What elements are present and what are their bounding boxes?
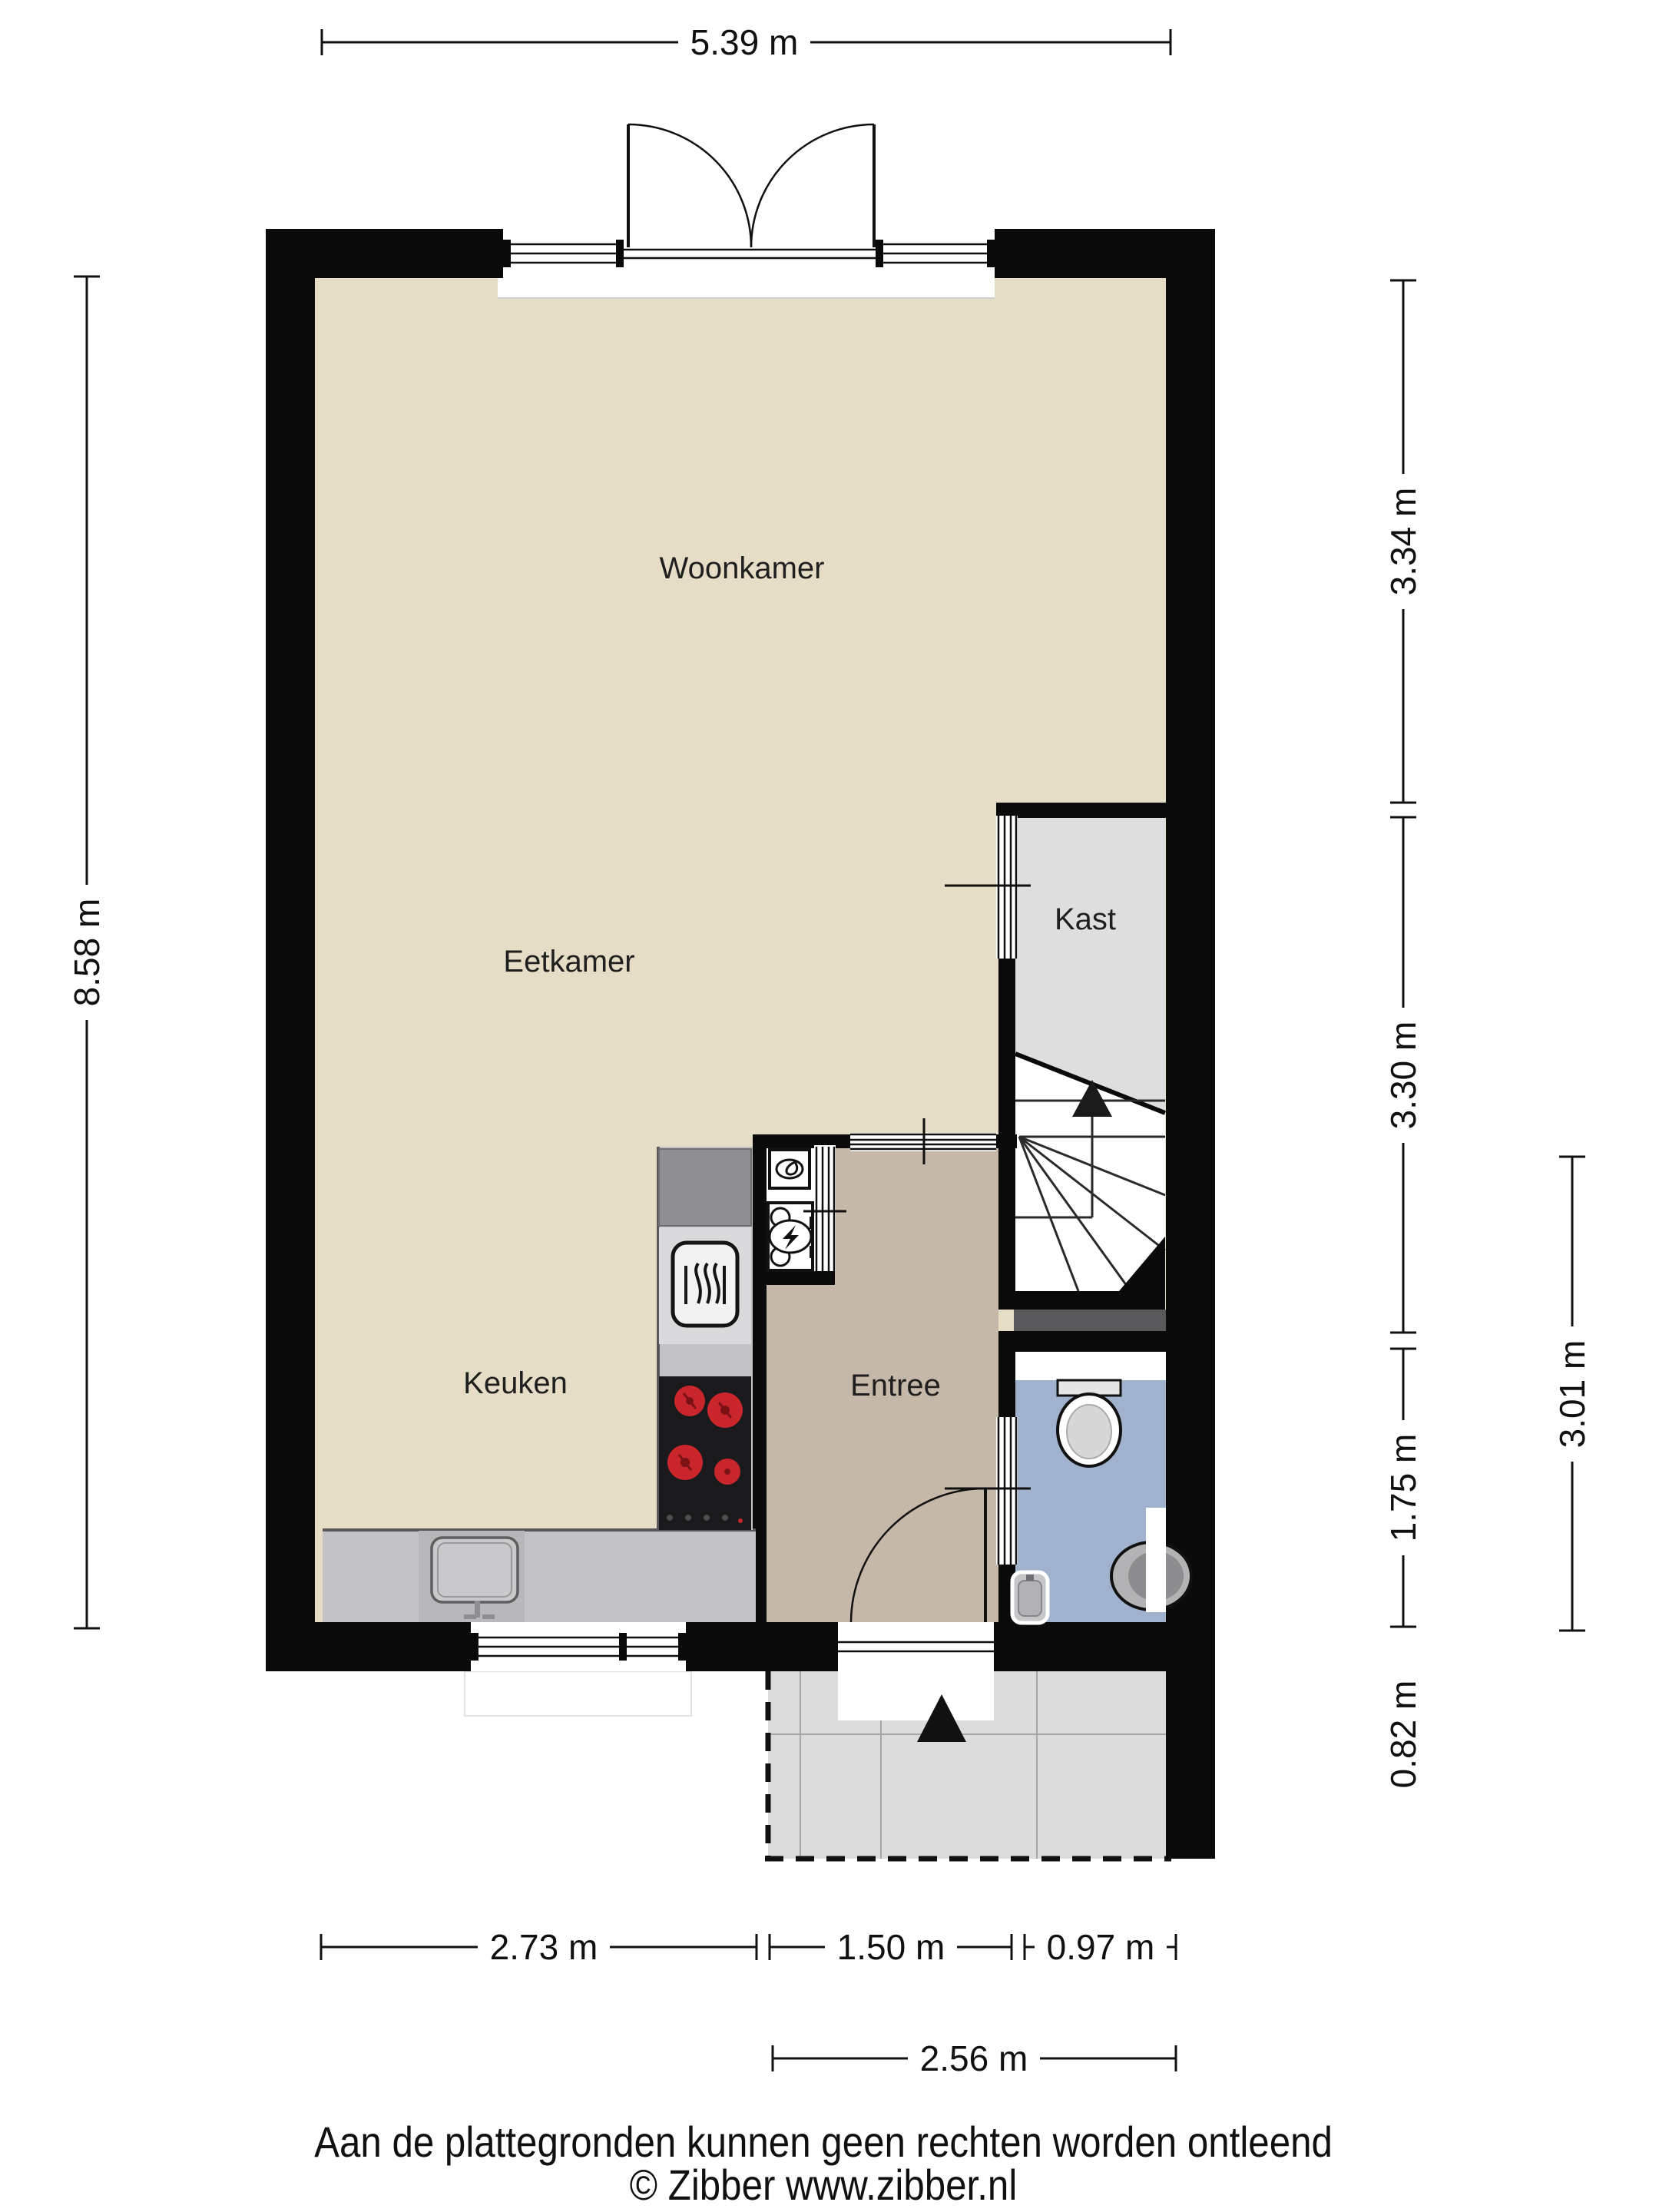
wall-meterkast-bottom (766, 1271, 835, 1285)
dim-right-low-label: 1.75 m (1383, 1434, 1423, 1542)
dim-right-mid-label: 3.30 m (1383, 1022, 1423, 1130)
dim-right-outer-label: 3.01 m (1552, 1340, 1592, 1449)
hand-basin-icon (1012, 1572, 1048, 1623)
toilet-shelf (1015, 1352, 1166, 1380)
dim-bottom-total: 2.56 m (773, 2035, 1176, 2081)
footer: Aan de plattegronden kunnen geen rechten… (314, 2118, 1333, 2210)
dim-right-top-label: 3.34 m (1383, 488, 1423, 596)
floorplan-page: Woonkamer Eetkamer Keuken Kast Entree 5.… (0, 0, 1659, 2212)
dim-top: 5.39 m (322, 19, 1171, 65)
electric-meter-icon (768, 1203, 817, 1270)
dim-right-column: 3.34 m 3.30 m 1.75 m 0.82 m (1382, 280, 1426, 1788)
meterkast-door (814, 1145, 836, 1271)
porch (465, 1671, 1171, 1859)
dim-right-bottom-label: 0.82 m (1383, 1681, 1423, 1789)
top-window-band (498, 229, 995, 298)
cooktop-icon (659, 1376, 751, 1530)
label-keuken: Keuken (463, 1366, 568, 1400)
footer-disclaimer: Aan de plattegronden kunnen geen rechten… (314, 2118, 1333, 2167)
wall-bottom-right (994, 1622, 1215, 1671)
sink-backplate (1146, 1508, 1166, 1612)
wall-kast-top (996, 803, 1166, 818)
dim-top-label: 5.39 m (690, 22, 799, 62)
floorplan-drawing: Woonkamer Eetkamer Keuken Kast Entree 5.… (0, 0, 1659, 2212)
dim-right-outer: 3.01 m (1551, 1157, 1595, 1631)
wall-left (266, 229, 315, 1671)
kast-door (996, 816, 1018, 959)
toilet-door (996, 1417, 1018, 1565)
window-sill-apron (465, 1671, 691, 1716)
stair-niche (1014, 1310, 1166, 1331)
kitchen-counter-bottom (323, 1528, 756, 1622)
kitchen-sink (419, 1531, 525, 1622)
label-eetkamer: Eetkamer (503, 945, 634, 979)
dim-left-label: 8.58 m (67, 899, 107, 1007)
wall-bottom-mid (686, 1622, 838, 1671)
label-kast: Kast (1055, 902, 1116, 936)
fridge (659, 1149, 751, 1226)
oven-icon (673, 1243, 737, 1326)
wall-top-left (266, 229, 503, 278)
boiler-icon (770, 1150, 810, 1188)
dim-bottom-total-label: 2.56 m (920, 2038, 1028, 2078)
dim-bottom-right-label: 0.97 m (1047, 1927, 1155, 1967)
bottom-window (471, 1622, 686, 1671)
wall-bottom-left (266, 1622, 471, 1671)
niche-wall (998, 1331, 1166, 1353)
door-threshold-apron (838, 1671, 994, 1720)
label-entree: Entree (850, 1369, 941, 1402)
toilet-icon (1058, 1380, 1121, 1466)
label-woonkamer: Woonkamer (660, 551, 825, 585)
interior-sill (498, 278, 995, 298)
dim-left: 8.58 m (65, 276, 110, 1628)
wall-right (1166, 229, 1215, 1859)
dim-bottom-left-label: 2.73 m (490, 1927, 598, 1967)
footer-credit: © Zibber www.zibber.nl (630, 2161, 1018, 2210)
dim-bottom-row: 2.73 m 1.50 m 0.97 m (321, 1924, 1176, 1970)
tap-icon (1026, 1575, 1034, 1581)
dim-bottom-mid-label: 1.50 m (837, 1927, 945, 1967)
